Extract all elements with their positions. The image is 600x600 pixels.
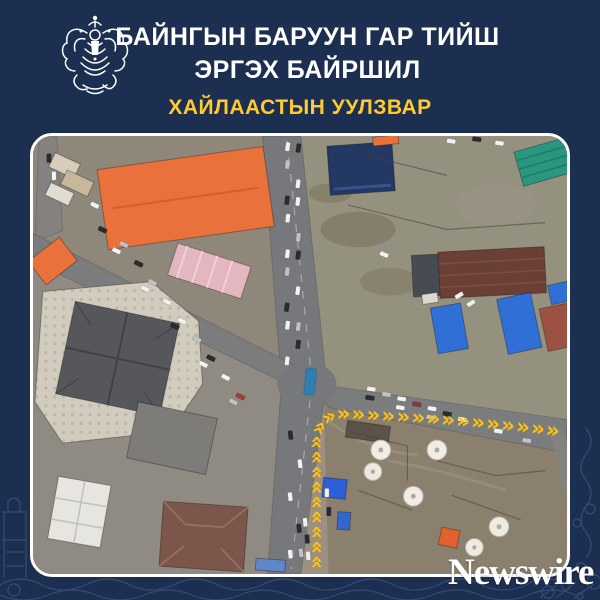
building-white xyxy=(48,476,111,547)
poster-subtitle: ХАЙЛААСТЫН УУЛЗВАР xyxy=(0,96,600,120)
poster-title: БАЙНГЫН БАРУУН ГАР ТИЙШ ЭРГЭХ БАЙРШИЛ xyxy=(95,21,520,87)
building-brown-roof xyxy=(411,247,546,300)
building-brown-bottom xyxy=(159,501,248,572)
brand-logo: Newswire xyxy=(448,551,598,594)
orange-shed xyxy=(438,527,460,548)
title-line2: ЭРГЭХ БАЙРШИЛ xyxy=(95,54,520,87)
satellite-map-frame: »»»»»»»»»»»»»»»»»»»»»»»»»»»»» xyxy=(30,133,570,577)
building-navy-roof xyxy=(327,142,395,196)
satellite-map: »»»»»»»»»»»»»»»»»»»»»»»»»»»»» xyxy=(33,136,567,574)
poster: БАЙНГЫН БАРУУН ГАР ТИЙШ ЭРГЭХ БАЙРШИЛ ХА… xyxy=(0,0,600,600)
title-line1: БАЙНГЫН БАРУУН ГАР ТИЙШ xyxy=(95,21,520,54)
